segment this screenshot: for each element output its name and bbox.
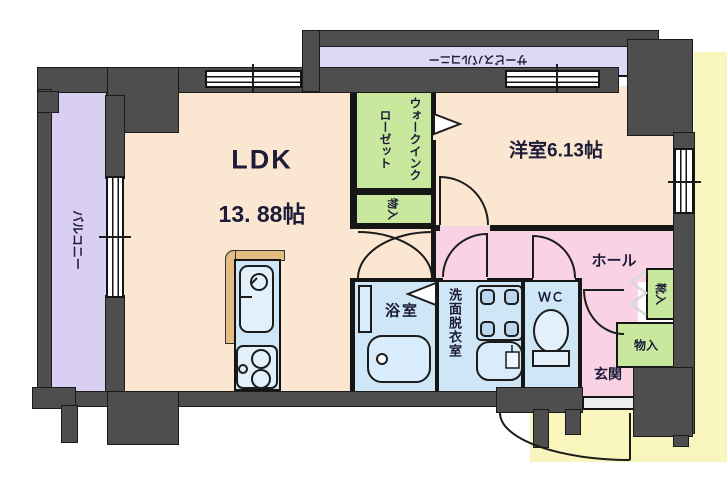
label-western-room: 洋室6.13帖 [509,136,603,163]
opening-marker-icon [434,114,460,134]
label-entry-storage: 物入 [634,337,658,354]
label-wic-storage: 物入 [385,198,401,220]
label-wc: ＷＣ [538,287,564,306]
label-service-balcony: サービスバルコニー [429,52,528,68]
label-walk-in-closet: ウォークインクローゼット [360,96,430,182]
door-entrance-inner [584,290,624,334]
label-bathroom: 浴室 [385,300,419,321]
floor-plan: LDK 13. 88帖 洋室6.13帖 バルコニー サービスバルコニー ウォーク… [0,0,727,484]
door-washroom [443,234,487,277]
kitchen-sink-icon [240,266,273,332]
label-shoe-storage: 靴入 [653,283,669,305]
label-balcony: バルコニー [70,210,87,270]
door-vestibule-right [358,232,432,278]
stove-icon [237,346,277,388]
washer-icon [477,286,522,340]
label-ldk: LDK [231,145,293,176]
door-western-room [440,177,488,225]
accordion-door-icon [631,271,646,315]
door-entrance-front [500,413,630,460]
toilet-icon [533,310,569,366]
label-hall: ホール [591,250,636,271]
door-wc [533,236,575,278]
plan-linework [0,0,727,484]
label-washroom: 洗面脱衣室 [444,288,464,390]
label-entrance: 玄関 [594,364,622,384]
label-ldk-area: 13. 88帖 [219,195,306,229]
vanity-sink-icon [477,342,522,380]
